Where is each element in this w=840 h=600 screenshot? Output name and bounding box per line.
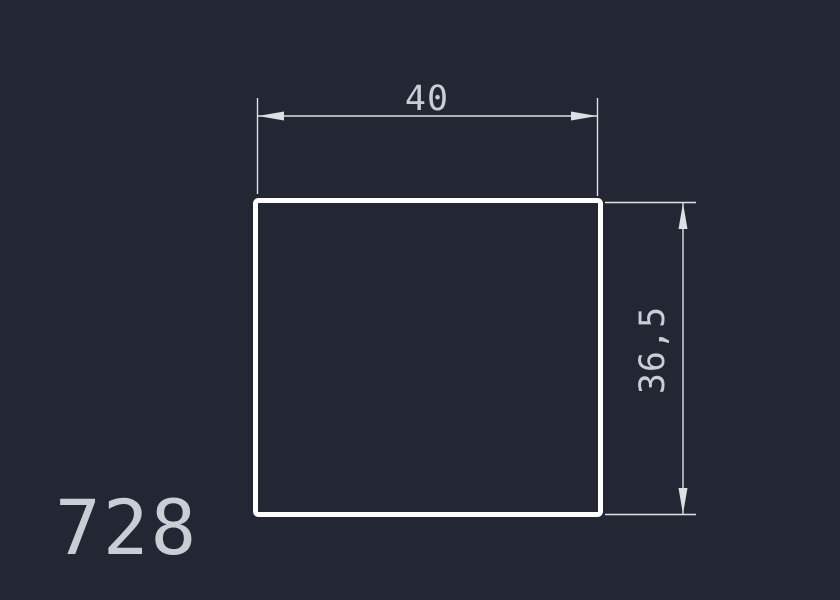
width-arrowhead-left [258, 112, 284, 121]
height-dimension: 36,5 [605, 203, 696, 515]
height-arrowhead-bottom [679, 488, 688, 514]
cad-drawing: 40 36,5 728 [0, 0, 840, 600]
width-dimension-value: 40 [405, 79, 449, 119]
height-arrowhead-top [679, 203, 688, 229]
drawing-number: 728 [55, 483, 198, 572]
width-dimension: 40 [258, 79, 598, 196]
width-arrowhead-right [571, 112, 597, 121]
cad-canvas: 40 36,5 728 [0, 0, 840, 600]
height-dimension-value: 36,5 [633, 306, 673, 394]
profile-outline [256, 201, 601, 515]
